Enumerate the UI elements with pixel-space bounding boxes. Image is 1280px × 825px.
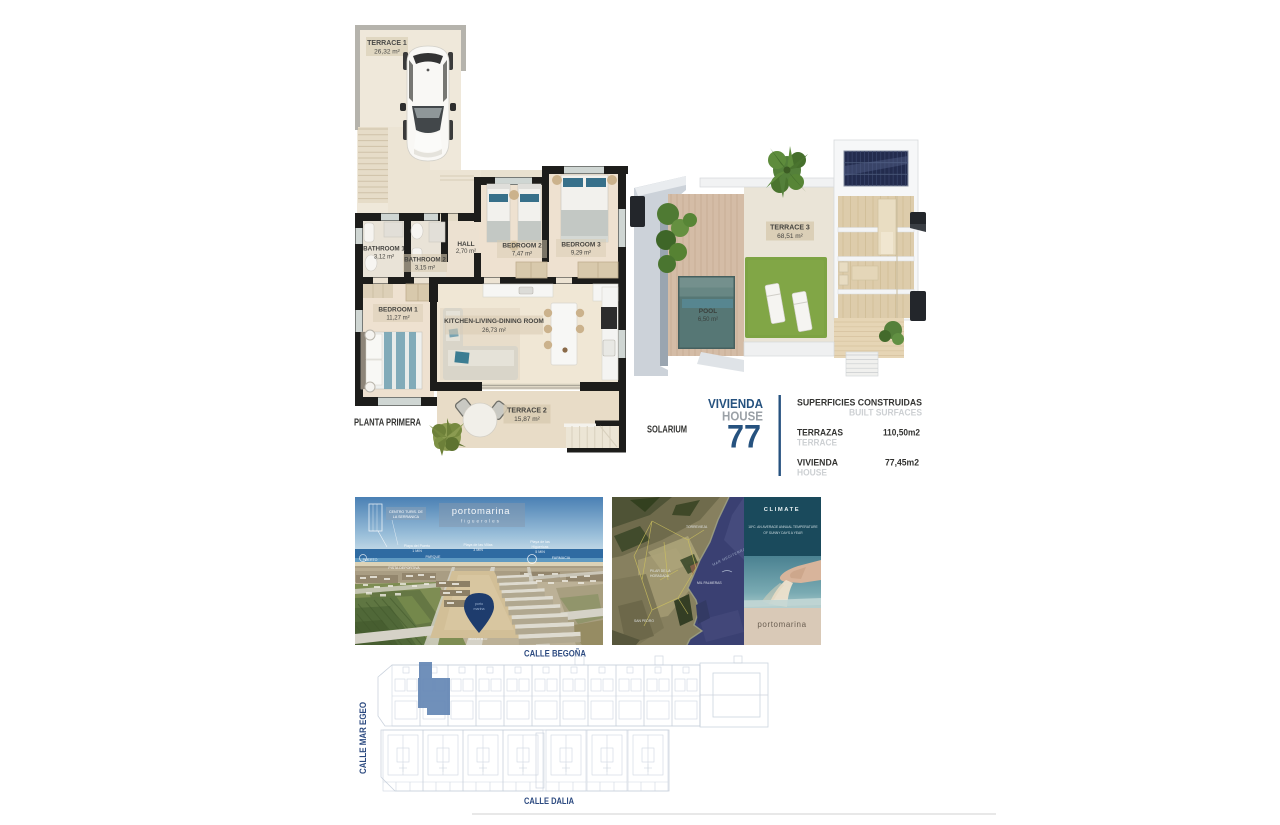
svg-text:BUILT SURFACES: BUILT SURFACES (849, 408, 923, 419)
svg-text:BEDROOM 3: BEDROOM 3 (561, 242, 601, 249)
svg-text:77,45m2: 77,45m2 (885, 458, 919, 469)
svg-text:FARMACIA: FARMACIA (552, 556, 571, 560)
svg-text:portomarina: portomarina (452, 506, 510, 517)
svg-text:18ºC. AN AVERAGE ANNUAL TEMPER: 18ºC. AN AVERAGE ANNUAL TEMPERATURE (748, 525, 818, 529)
svg-text:TORREVIEJA: TORREVIEJA (686, 525, 708, 529)
svg-text:BEDROOM 2: BEDROOM 2 (502, 243, 542, 250)
svg-text:PILAR DE LA: PILAR DE LA (650, 569, 671, 573)
svg-text:CENTRO TURIS. DE: CENTRO TURIS. DE (389, 510, 423, 514)
svg-text:9,29 m²: 9,29 m² (571, 251, 591, 257)
svg-text:2,70 m²: 2,70 m² (456, 249, 476, 255)
svg-text:CALLE BEGOÑA: CALLE BEGOÑA (524, 649, 586, 660)
svg-text:Playa del Puerto: Playa del Puerto (404, 544, 430, 548)
svg-text:TERRACE 1: TERRACE 1 (367, 40, 407, 47)
svg-text:OF SUNNY DAYS A YEAR: OF SUNNY DAYS A YEAR (763, 531, 803, 535)
svg-text:3 MIN: 3 MIN (473, 548, 483, 552)
svg-text:3,15 m²: 3,15 m² (415, 266, 435, 272)
svg-text:TERRACE: TERRACE (797, 438, 838, 449)
svg-text:6,50 m²: 6,50 m² (698, 317, 718, 323)
svg-text:3,12 m²: 3,12 m² (374, 255, 394, 261)
svg-text:26,73 m²: 26,73 m² (482, 328, 506, 334)
svg-text:PUERTO: PUERTO (363, 558, 378, 562)
svg-text:26,32 m²: 26,32 m² (374, 49, 400, 56)
svg-text:CLIMATE: CLIMATE (764, 507, 801, 513)
svg-text:HALL: HALL (457, 241, 474, 248)
svg-text:Playa de las: Playa de las (530, 540, 550, 544)
svg-text:110,50m2: 110,50m2 (883, 428, 920, 439)
svg-text:Higuericas: Higuericas (532, 545, 549, 549)
svg-text:LA SERRANICA: LA SERRANICA (393, 515, 420, 519)
svg-text:CALLE MAR EGEO: CALLE MAR EGEO (358, 702, 369, 774)
svg-text:PLANTA PRIMERA: PLANTA PRIMERA (354, 417, 421, 429)
svg-text:68,51 m²: 68,51 m² (777, 233, 803, 240)
svg-text:porto: porto (475, 602, 483, 606)
svg-text:TERRACE 2: TERRACE 2 (507, 408, 547, 415)
svg-text:BATHROOM 2: BATHROOM 2 (404, 256, 446, 263)
svg-text:PARQUE: PARQUE (426, 555, 442, 559)
svg-text:5 MIN: 5 MIN (535, 550, 545, 554)
svg-text:BEDROOM 1: BEDROOM 1 (378, 307, 418, 314)
svg-text:KITCHEN-LIVING-DINING ROOM: KITCHEN-LIVING-DINING ROOM (444, 318, 544, 325)
svg-text:figueroles: figueroles (461, 519, 501, 524)
svg-text:7,47 m²: 7,47 m² (512, 252, 532, 258)
svg-text:PISTA DEPORTIVA: PISTA DEPORTIVA (388, 566, 420, 570)
svg-text:11,27 m²: 11,27 m² (386, 316, 409, 322)
svg-text:1 MIN: 1 MIN (412, 549, 422, 553)
svg-text:SOLARIUM: SOLARIUM (647, 425, 687, 436)
svg-text:SAN PEDRO: SAN PEDRO (634, 619, 654, 623)
svg-text:77: 77 (727, 419, 761, 455)
svg-text:marina: marina (474, 607, 485, 611)
svg-text:portomarina: portomarina (757, 620, 806, 629)
svg-text:HOUSE: HOUSE (797, 468, 828, 479)
svg-text:TERRACE 3: TERRACE 3 (770, 225, 810, 232)
svg-text:15,87 m²: 15,87 m² (514, 416, 540, 423)
svg-text:CALLE DALIA: CALLE DALIA (524, 796, 574, 807)
svg-text:Playa de las Villas: Playa de las Villas (463, 543, 492, 547)
svg-text:HORADADA: HORADADA (650, 574, 670, 578)
svg-text:BATHROOM 1: BATHROOM 1 (363, 245, 405, 252)
svg-text:MUCHO MAR: MUCHO MAR (469, 637, 489, 641)
svg-text:POOL: POOL (699, 308, 717, 315)
svg-text:MIL PALMERAS: MIL PALMERAS (697, 581, 722, 585)
